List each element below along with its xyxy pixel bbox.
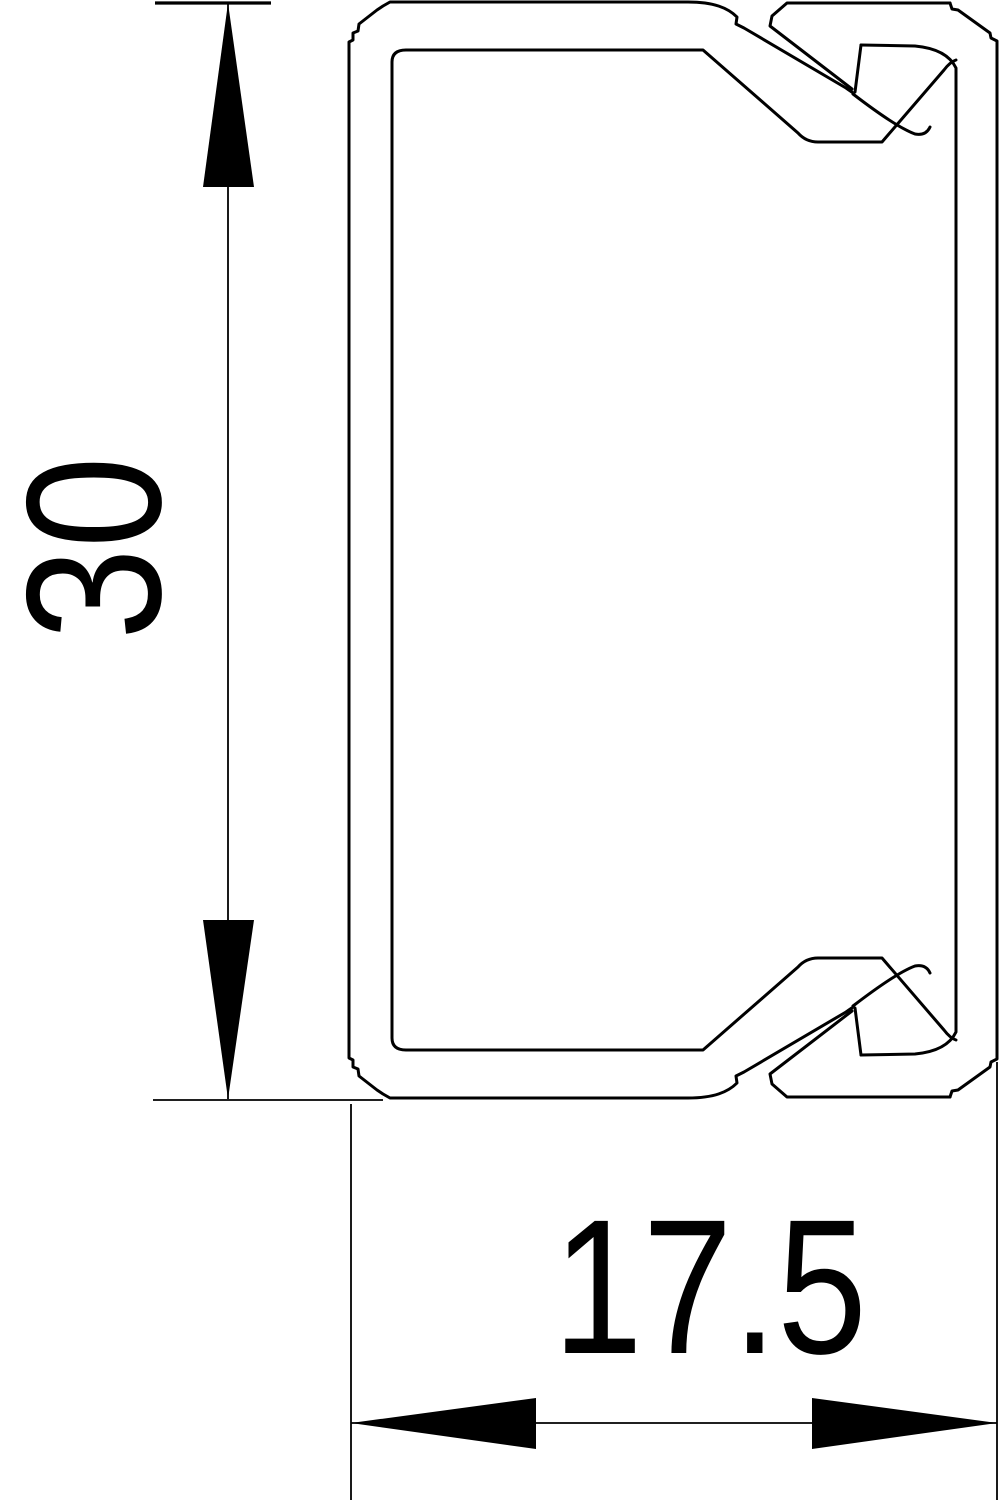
- profile-top-half: [349, 2, 997, 551]
- arrowhead-up: [203, 3, 254, 187]
- arrowhead-left: [351, 1398, 536, 1449]
- body-outer-edge: [349, 2, 852, 551]
- body-inner-edge: [392, 50, 956, 551]
- duct-profile-drawing: 30 17.5: [0, 0, 1002, 1500]
- lid-inner-edge: [861, 45, 956, 551]
- joint-gap-line: [855, 45, 861, 92]
- profile-bottom-half: [349, 549, 997, 1098]
- technical-drawing-canvas: 30 17.5: [0, 0, 1002, 1500]
- duct-profile: [349, 2, 997, 1098]
- dimension-height-label: 30: [0, 456, 201, 640]
- dimension-width: 17.5: [351, 1062, 997, 1500]
- arrowhead-down: [203, 920, 254, 1099]
- arrowhead-right: [812, 1398, 997, 1449]
- dimension-width-label: 17.5: [553, 1179, 867, 1394]
- dimension-height: 30: [0, 3, 383, 1100]
